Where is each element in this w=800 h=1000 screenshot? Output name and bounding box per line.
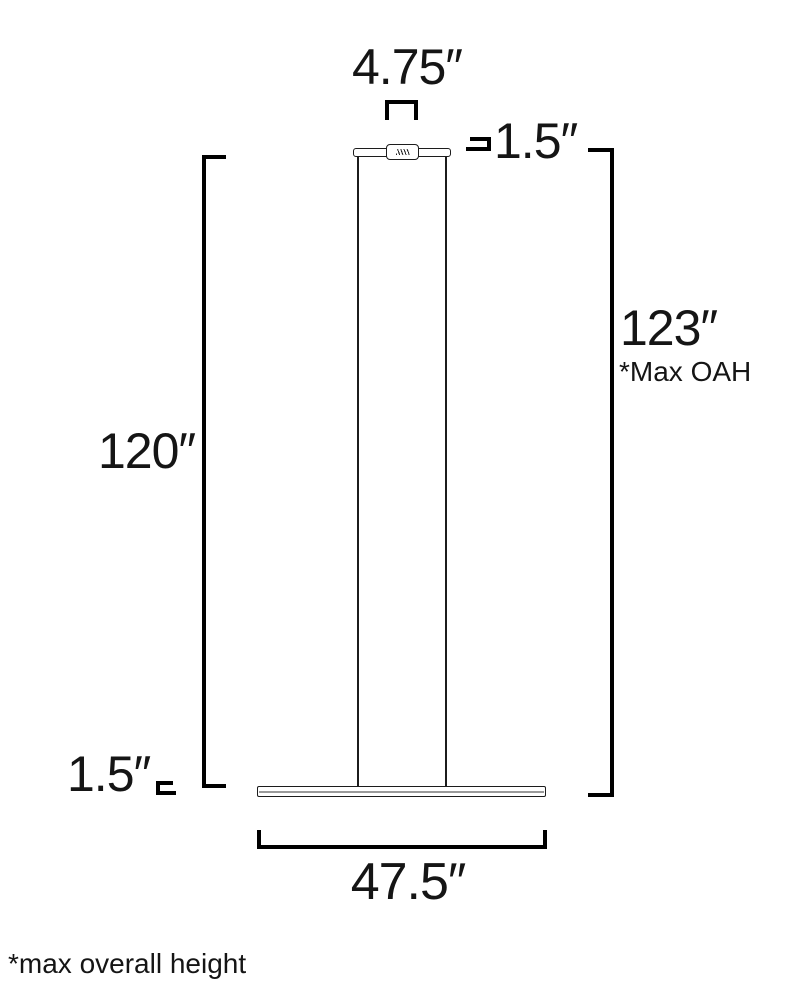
footnote-max-overall-height: *max overall height — [8, 950, 246, 978]
oah-bracket-bottom-foot — [588, 793, 614, 797]
cable-right — [445, 156, 447, 788]
canopy-hatch-marks — [396, 149, 410, 155]
suspension-bracket-vertical — [202, 155, 206, 788]
suspension-height-label: 120″ — [98, 426, 195, 476]
fixture-height-tick-left — [156, 781, 160, 795]
fixture-width-bracket-left-tick — [257, 830, 261, 849]
max-oah-note-label: *Max OAH — [619, 358, 751, 386]
fixture-width-bracket-horizontal — [257, 845, 547, 849]
suspension-bracket-bottom-foot — [202, 784, 226, 788]
fixture-height-label: 1.5″ — [67, 749, 150, 799]
fixture-bar-inner-line — [259, 791, 544, 793]
canopy-width-bracket-left-leg — [385, 100, 389, 120]
max-oah-value-label: 123″ — [620, 303, 717, 353]
fixture-height-tick-top — [158, 781, 173, 785]
canopy-height-label: 1.5″ — [494, 116, 577, 166]
suspension-bracket-top-foot — [202, 155, 226, 159]
fixture-width-label: 47.5″ — [351, 856, 466, 908]
canopy-width-bracket-right-leg — [414, 100, 418, 120]
oah-bracket-vertical — [610, 148, 614, 797]
cable-left — [357, 156, 359, 788]
fixture-width-bracket-right-tick — [543, 830, 547, 849]
canopy-height-tick-right — [487, 137, 491, 151]
oah-bracket-top-foot — [588, 148, 614, 152]
canopy-width-label: 4.75″ — [352, 42, 462, 92]
dimension-diagram: 4.75″ 1.5″ 123″ *Max OAH 120″ 1.5″ 47.5″… — [0, 0, 800, 1000]
